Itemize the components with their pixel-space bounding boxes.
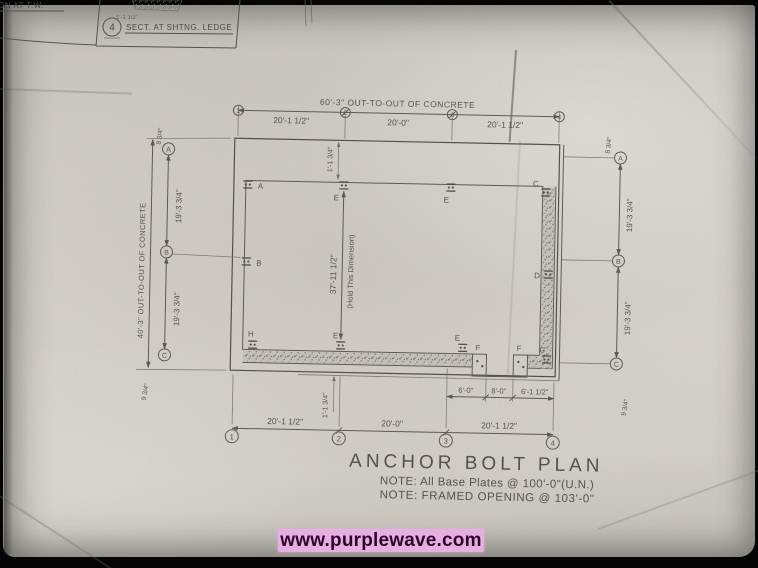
bolt-label: G [540,347,546,354]
bolt-label: E [333,331,339,340]
grid-bubble-row-c: C [162,353,167,360]
bolt-label: A [258,182,264,191]
bottom-bay-dim: 20'-0" [381,418,403,428]
drawing-title-block: ANCHOR BOLT PLAN NOTE: All Base Plates @… [348,451,603,506]
grid-bubble-row-b: B [616,259,621,266]
left-row-dim: 19'-3 3/4" [172,292,182,326]
grid-bubble-2: 2 [343,110,347,117]
bolt-label: E [444,195,450,204]
right-row-dim: 19'-3 3/4" [623,301,633,335]
interior-dim-note: (Hold This Dimension) [345,234,355,309]
framed-opening [472,354,527,377]
bolt-label: C [533,179,539,188]
sheet-boundary-line [0,38,96,45]
grid-bubble-2: 2 [337,434,341,443]
bottom-wall-hatch [243,350,472,366]
grid-bubble-1: 1 [236,108,240,115]
partial-detail-title: SECTION AT T.W. [0,1,44,10]
right-row-dim: 19'-3 3/4" [625,198,635,232]
opening-jamb-left [472,354,486,376]
corner-offset-bottom: 1'-1 3/4" [322,392,330,418]
lap-note: 1'-1 1/2" [116,15,138,21]
opening-dim-3: 6'-1 1/2" [521,387,549,397]
bolt-label: H [248,330,254,339]
base-plate-symbol [458,344,467,351]
detail-sketch-hatch [132,0,182,11]
drawing-note-2: NOTE: FRAMED OPENING @ 103'-0" [380,489,595,505]
bottom-wall-hatch-right [527,356,551,367]
detail-title: SECT. AT SHTNG. LEDGE [126,23,232,32]
base-plate-symbol [248,341,257,348]
blueprint-photo: 1'-1 1/2" 4 SECT. AT SHTNG. LEDGE SECTIO… [0,0,758,568]
corner-offset-top: 1'-1 3/4" [327,146,335,172]
edge-offset-top-right: 8 3/4" [605,136,614,154]
title-block-fragment: 1'-1 1/2" 4 SECT. AT SHTNG. LEDGE SECTIO… [0,0,340,62]
watermark-band: www.purplewave.com [278,529,484,552]
top-bay-dim: 20'-0" [387,117,409,127]
base-plate-symbol [336,342,345,349]
bottom-bay-dim: 20'-1 1/2" [267,416,303,427]
edge-offset-bottom-right: 9 3/4" [620,398,630,416]
bolt-label: E [334,193,340,202]
bolt-label: E [455,334,461,343]
grid-bubble-1: 1 [230,432,234,441]
grid-bubble-row-a: A [166,147,171,154]
left-row-dim: 19'-3 3/4" [174,189,184,223]
grid-bubble-row-b: B [164,250,169,257]
base-plate-symbol [243,181,252,188]
detail-number: 4 [109,23,115,34]
anchor-bolt-marks: A E E C B D H E E F F G [240,173,555,363]
bolt-label: D [534,271,540,280]
opening-dim-1: 6'-0" [458,386,473,395]
bolt-label: F [476,343,481,352]
sheet-edge-marks [305,0,312,26]
right-dimension: A B C 19'-3 3/4" 19'-3 3/4" 8 3/4" 9 3/4… [558,135,636,417]
opening-jamb-right [513,355,527,377]
opening-dim-2: 8'-0" [491,386,506,395]
edge-offset-bottom-left: 9 3/4" [141,382,151,400]
opening-dimension: 6'-0" 8'-0" 6'-1 1/2" [447,378,554,403]
bolt-label: B [256,259,262,268]
grid-bubble-row-a: A [618,156,623,163]
bolt-label: F [517,344,522,353]
top-bay-dim: 20'-1 1/2" [487,119,523,130]
grid-bubble-4: 4 [557,114,561,121]
grid-bubble-row-c: C [614,362,619,369]
grid-bubble-3: 3 [450,112,454,119]
left-dimension: 40'-3" OUT-TO-OUT OF CONCRETE A B C 19'-… [135,126,243,402]
inner-face-lines [242,180,556,368]
interior-dim-value: 37'-11 1/2" [328,254,339,294]
edge-offset-top-left: 8 3/4" [156,127,165,145]
opening-recess-line [486,376,513,377]
concrete-outline [230,138,564,381]
top-bay-dim: 20'-1 1/2" [273,115,309,126]
bottom-bay-dim: 20'-1 1/2" [481,420,517,431]
base-plate-symbol [242,258,251,265]
interior-dimension: 37'-11 1/2" (Hold This Dimension) [327,191,357,340]
detail-title-underline [125,33,233,34]
watermark-url-text: www.purplewave.com [280,530,481,552]
anchor-bolt-plan-drawing: A E E C B D H E E F F G 1 [115,78,699,537]
grid-bubble-3: 3 [444,436,448,445]
grid-bubble-4: 4 [551,439,555,448]
wall-hatch-strips [243,181,555,368]
drawing-title: ANCHOR BOLT PLAN [349,451,604,477]
left-overall-dim: 40'-3" OUT-TO-OUT OF CONCRETE [136,202,148,338]
